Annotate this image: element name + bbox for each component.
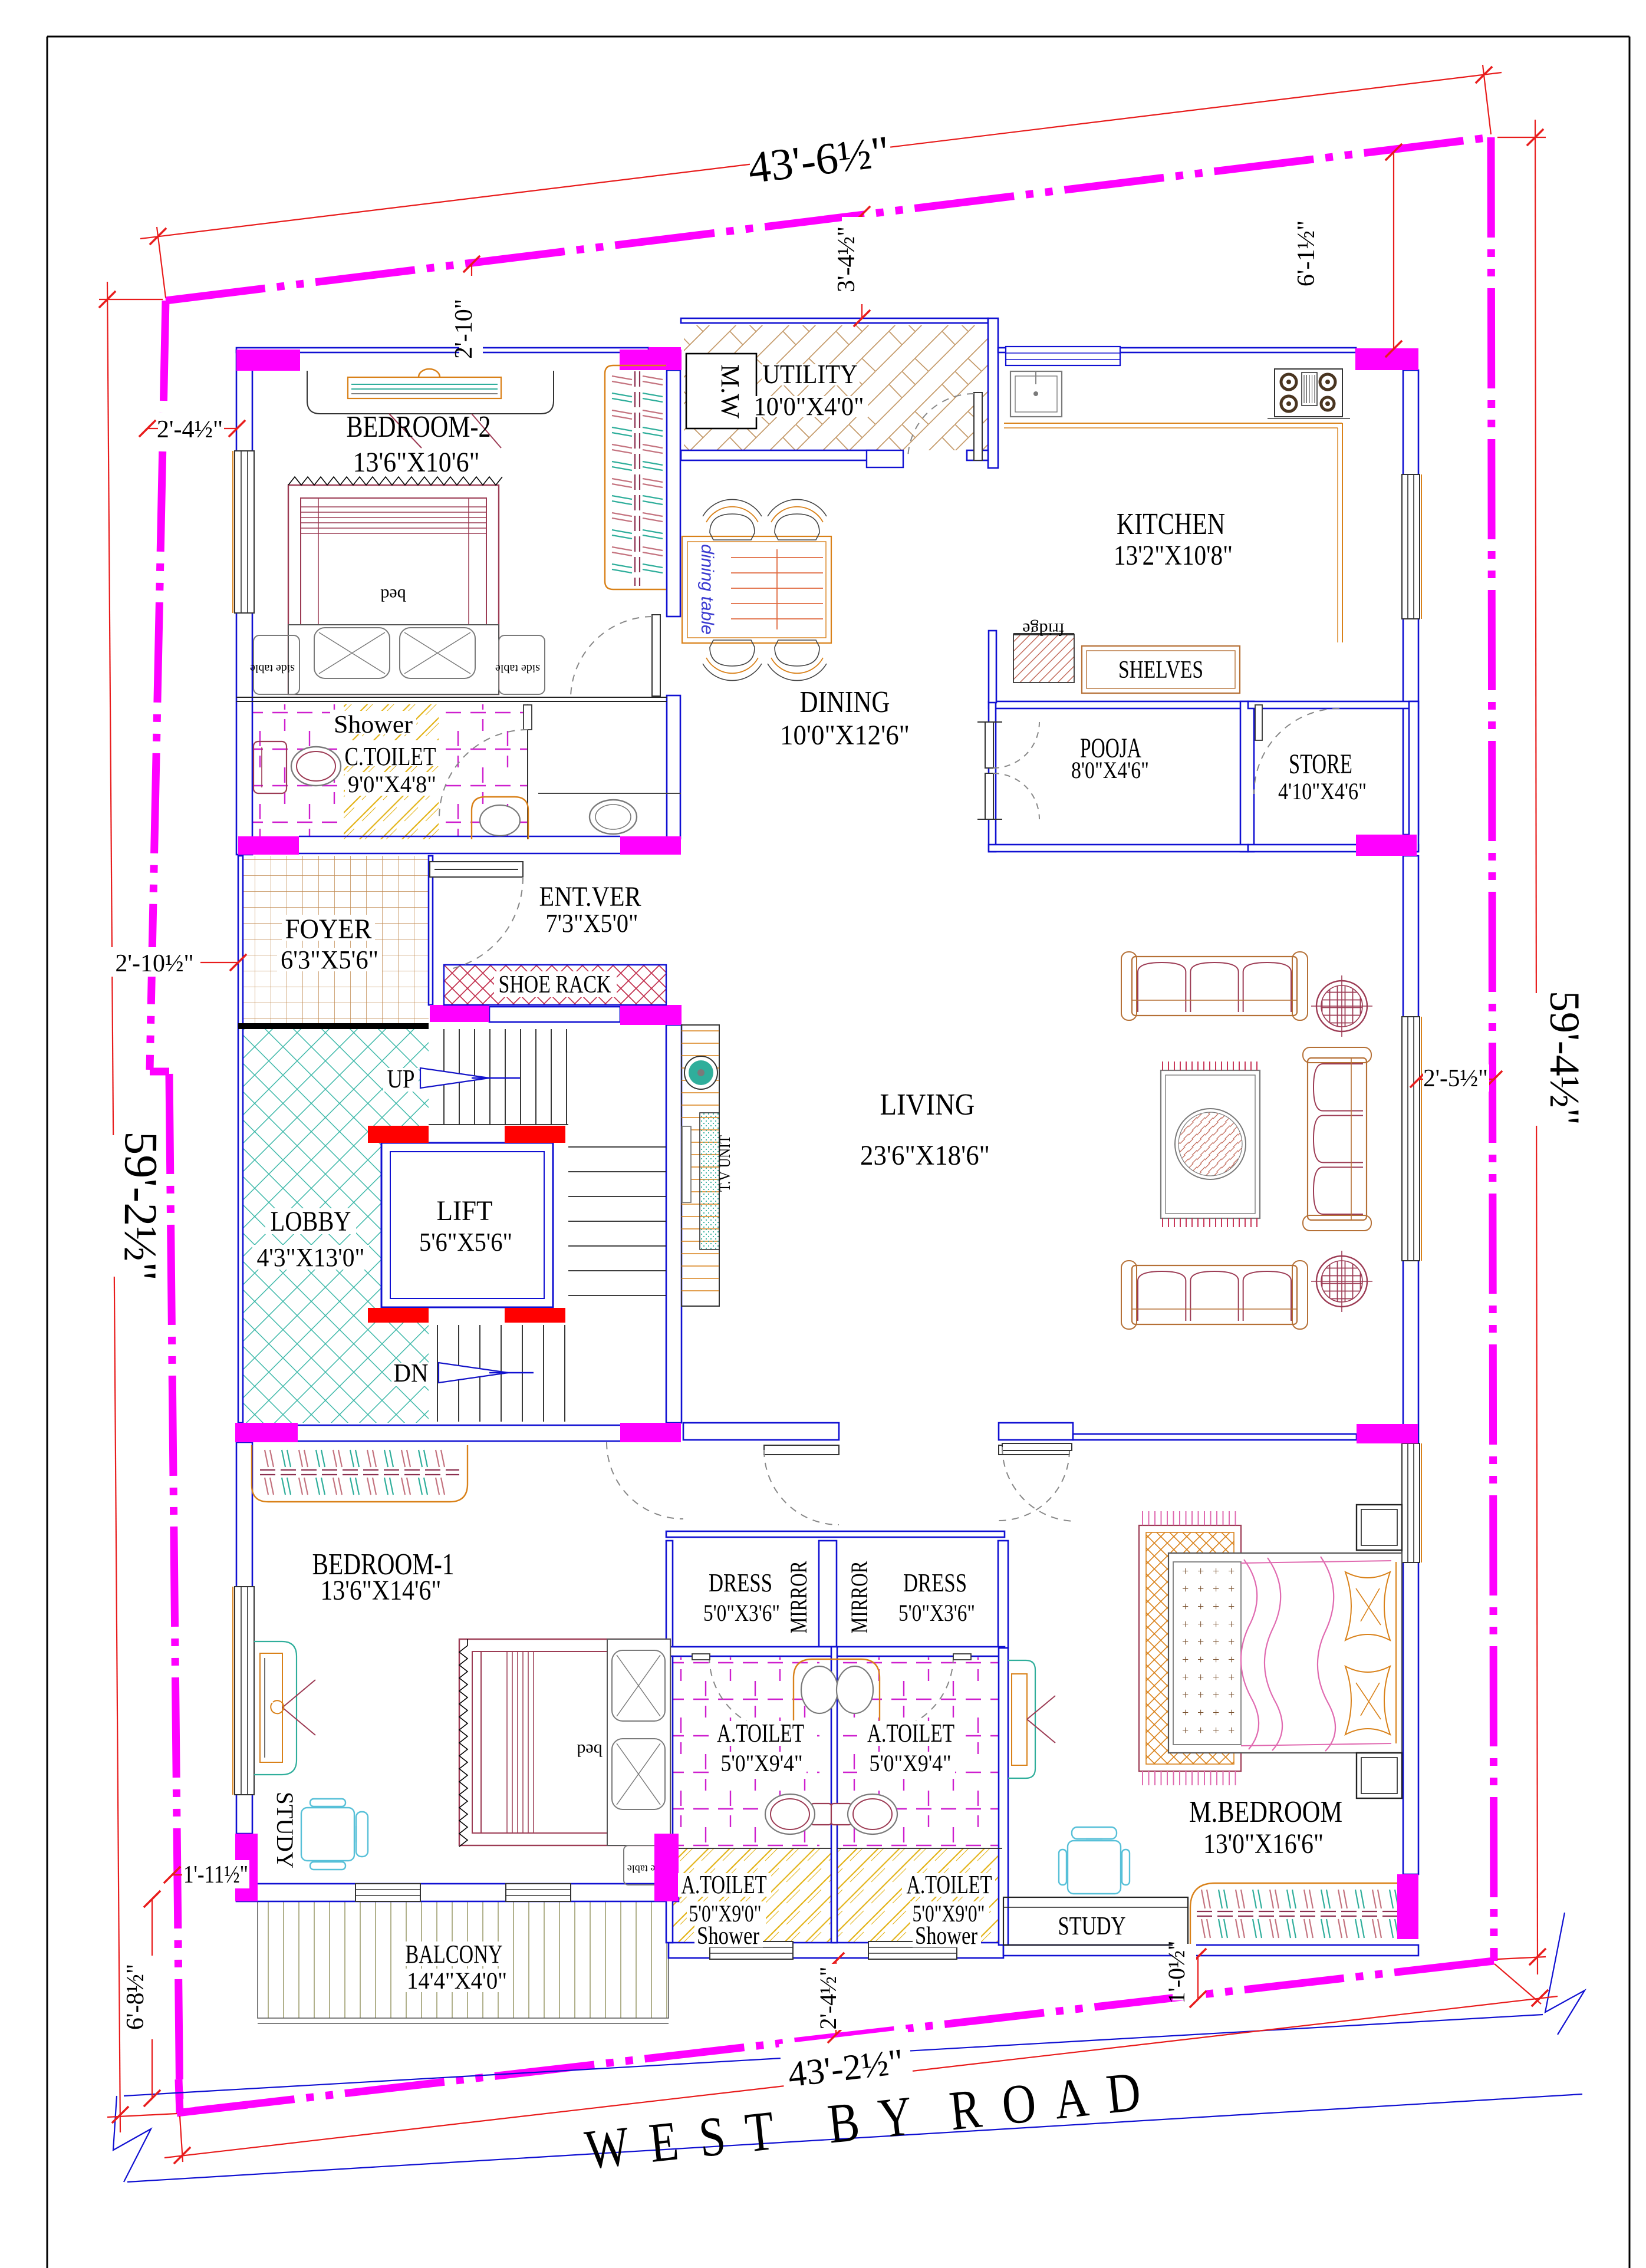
svg-text:DINING: DINING xyxy=(800,685,890,719)
svg-text:+: + xyxy=(1213,1583,1219,1595)
svg-text:+: + xyxy=(1228,1636,1234,1649)
svg-text:side table: side table xyxy=(495,662,540,675)
svg-text:+: + xyxy=(1213,1600,1219,1613)
svg-text:+: + xyxy=(1197,1689,1204,1702)
svg-text:9'0"X4'8": 9'0"X4'8" xyxy=(348,771,436,797)
svg-text:+: + xyxy=(1182,1600,1189,1613)
svg-text:+: + xyxy=(1213,1671,1219,1684)
svg-text:14'4"X4'0": 14'4"X4'0" xyxy=(407,1967,507,1994)
svg-text:1'-11½": 1'-11½" xyxy=(183,1861,248,1888)
svg-text:3'-4½": 3'-4½" xyxy=(833,226,860,292)
svg-text:5'0"X3'6": 5'0"X3'6" xyxy=(703,1600,780,1626)
svg-text:+: + xyxy=(1228,1724,1234,1737)
svg-text:+: + xyxy=(1197,1583,1204,1595)
svg-text:STUDY: STUDY xyxy=(1058,1911,1126,1940)
svg-text:+: + xyxy=(1182,1706,1189,1719)
svg-text:+: + xyxy=(1213,1636,1219,1649)
svg-text:2'-10½": 2'-10½" xyxy=(115,950,193,977)
svg-text:Shower: Shower xyxy=(697,1923,759,1950)
svg-text:+: + xyxy=(1228,1565,1234,1578)
svg-text:+: + xyxy=(1197,1671,1204,1684)
svg-text:13'0"X16'6": 13'0"X16'6" xyxy=(1203,1828,1324,1860)
svg-text:+: + xyxy=(1228,1653,1234,1666)
svg-text:2'-10": 2'-10" xyxy=(450,299,478,359)
svg-text:7'3"X5'0": 7'3"X5'0" xyxy=(546,909,638,938)
svg-text:2'-5½": 2'-5½" xyxy=(1423,1065,1488,1092)
svg-text:LOBBY: LOBBY xyxy=(271,1206,351,1237)
svg-text:13'6"X10'6": 13'6"X10'6" xyxy=(353,447,480,478)
svg-text:MIRROR: MIRROR xyxy=(785,1561,812,1633)
svg-text:M.BEDROOM: M.BEDROOM xyxy=(1189,1795,1342,1829)
svg-text:+: + xyxy=(1182,1565,1189,1578)
svg-text:T.V UNIT: T.V UNIT xyxy=(716,1135,733,1192)
svg-text:+: + xyxy=(1228,1689,1234,1702)
svg-text:+: + xyxy=(1197,1636,1204,1649)
svg-text:2'-4½": 2'-4½" xyxy=(815,1967,841,2030)
svg-text:LIFT: LIFT xyxy=(437,1195,493,1227)
svg-text:+: + xyxy=(1213,1689,1219,1702)
svg-text:+: + xyxy=(1228,1706,1234,1719)
svg-text:+: + xyxy=(1197,1724,1204,1737)
svg-text:+: + xyxy=(1197,1653,1204,1666)
svg-text:DN: DN xyxy=(394,1359,429,1387)
svg-text:59'-4½": 59'-4½" xyxy=(1541,991,1588,1125)
svg-text:+: + xyxy=(1213,1565,1219,1578)
svg-text:+: + xyxy=(1213,1706,1219,1719)
svg-text:+: + xyxy=(1213,1618,1219,1631)
svg-text:+: + xyxy=(1182,1583,1189,1595)
svg-text:23'6"X18'6": 23'6"X18'6" xyxy=(860,1140,990,1171)
svg-text:side table: side table xyxy=(250,662,295,675)
svg-text:BALCONY: BALCONY xyxy=(406,1940,503,1969)
svg-text:+: + xyxy=(1197,1618,1204,1631)
svg-text:+: + xyxy=(1228,1618,1234,1631)
svg-text:5'0"X9'4": 5'0"X9'4" xyxy=(870,1750,952,1776)
svg-text:A.TOILET: A.TOILET xyxy=(867,1719,954,1748)
svg-text:bed: bed xyxy=(577,1740,602,1760)
svg-text:FOYER: FOYER xyxy=(285,914,372,945)
svg-text:13'6"X14'6": 13'6"X14'6" xyxy=(321,1575,442,1606)
svg-text:+: + xyxy=(1182,1724,1189,1737)
svg-text:6'3"X5'6": 6'3"X5'6" xyxy=(281,945,378,974)
svg-text:SHOE RACK: SHOE RACK xyxy=(499,971,611,998)
svg-text:4'10"X4'6": 4'10"X4'6" xyxy=(1278,778,1367,805)
svg-text:Shower: Shower xyxy=(915,1923,977,1950)
svg-text:+: + xyxy=(1213,1653,1219,1666)
svg-text:KITCHEN: KITCHEN xyxy=(1117,507,1225,541)
svg-text:+: + xyxy=(1182,1689,1189,1702)
svg-text:10'0"X4'0": 10'0"X4'0" xyxy=(754,392,864,421)
svg-text:M.W: M.W xyxy=(716,364,745,418)
svg-text:DRESS: DRESS xyxy=(709,1568,772,1597)
svg-text:fridge: fridge xyxy=(1022,619,1065,639)
svg-text:+: + xyxy=(1228,1583,1234,1595)
svg-text:LIVING: LIVING xyxy=(880,1088,975,1122)
svg-text:5'0"X9'4": 5'0"X9'4" xyxy=(721,1750,803,1776)
svg-text:+: + xyxy=(1182,1671,1189,1684)
svg-text:+: + xyxy=(1197,1706,1204,1719)
svg-text:2'-4½": 2'-4½" xyxy=(157,416,223,443)
svg-text:A.TOILET: A.TOILET xyxy=(717,1719,804,1748)
svg-text:UP: UP xyxy=(387,1064,415,1093)
svg-text:Shower: Shower xyxy=(334,711,413,739)
svg-text:13'2"X10'8": 13'2"X10'8" xyxy=(1114,540,1233,571)
svg-text:DRESS: DRESS xyxy=(903,1568,967,1597)
svg-text:STORE: STORE xyxy=(1289,749,1352,780)
svg-text:8'0"X4'6": 8'0"X4'6" xyxy=(1071,757,1149,783)
svg-text:dining table: dining table xyxy=(697,544,717,634)
svg-text:STUDY: STUDY xyxy=(272,1792,298,1868)
svg-text:C.TOILET: C.TOILET xyxy=(345,742,436,771)
svg-text:MIRROR: MIRROR xyxy=(846,1561,873,1633)
svg-text:+: + xyxy=(1213,1724,1219,1737)
svg-text:SHELVES: SHELVES xyxy=(1118,657,1203,684)
svg-text:4'3"X13'0": 4'3"X13'0" xyxy=(257,1243,365,1272)
svg-text:+: + xyxy=(1228,1600,1234,1613)
svg-text:5'0"X3'6": 5'0"X3'6" xyxy=(898,1600,975,1626)
svg-text:A.TOILET: A.TOILET xyxy=(682,1870,767,1899)
svg-text:+: + xyxy=(1197,1565,1204,1578)
svg-text:+: + xyxy=(1228,1671,1234,1684)
svg-text:+: + xyxy=(1182,1636,1189,1649)
svg-text:bed: bed xyxy=(380,585,406,605)
svg-text:6'-8½": 6'-8½" xyxy=(122,1964,149,2030)
svg-text:UTILITY: UTILITY xyxy=(763,359,858,389)
svg-text:5'6"X5'6": 5'6"X5'6" xyxy=(419,1228,512,1257)
svg-text:ENT.VER: ENT.VER xyxy=(539,881,641,912)
svg-text:1'-0½": 1'-0½" xyxy=(1163,1941,1190,2004)
svg-text:+: + xyxy=(1182,1618,1189,1631)
svg-text:A.TOILET: A.TOILET xyxy=(907,1870,992,1899)
svg-text:+: + xyxy=(1197,1600,1204,1613)
svg-text:10'0"X12'6": 10'0"X12'6" xyxy=(780,720,910,751)
svg-text:+: + xyxy=(1182,1653,1189,1666)
svg-text:59'-2½": 59'-2½" xyxy=(114,1131,167,1281)
svg-text:BEDROOM-2: BEDROOM-2 xyxy=(347,410,491,444)
svg-text:6'-1½": 6'-1½" xyxy=(1293,220,1320,286)
